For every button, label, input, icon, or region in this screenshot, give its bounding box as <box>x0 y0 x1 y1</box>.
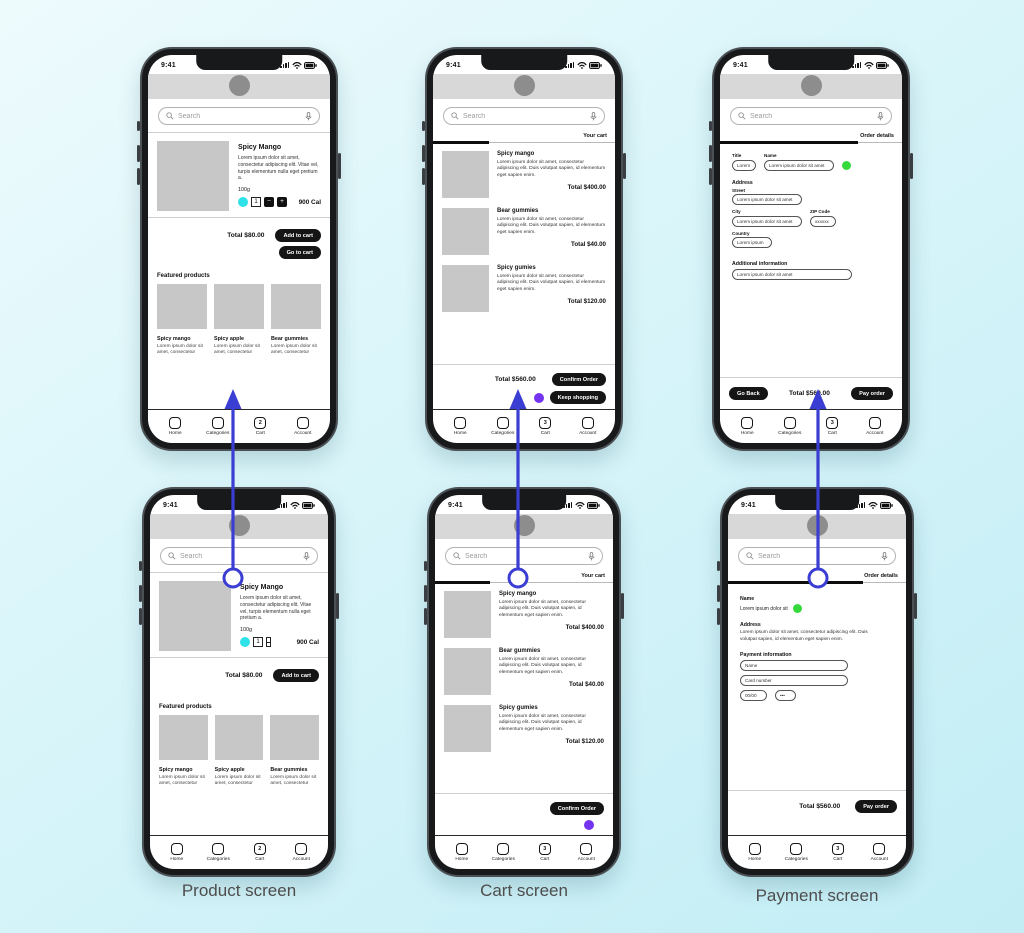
cart-badge: 3 <box>543 846 546 852</box>
wifi-icon <box>290 502 300 509</box>
address-heading: Address <box>732 180 890 186</box>
home-icon <box>749 843 761 855</box>
nav-label: Account <box>294 431 311 436</box>
search-row <box>148 99 330 132</box>
nav-home[interactable]: Home <box>445 843 479 862</box>
street-label: Street <box>732 188 890 193</box>
mic-icon <box>881 552 888 561</box>
cart-item-image <box>442 151 489 198</box>
flow-arrow-payment <box>805 385 831 600</box>
cart-item[interactable]: Bear gummies Lorem ipsum dolor sit amet,… <box>435 640 613 697</box>
cart-item-image <box>444 591 491 638</box>
cart-item[interactable]: Spicy gumies Lorem ipsum dolor sit amet,… <box>433 257 615 314</box>
home-icon <box>171 843 183 855</box>
cart-item-image <box>444 705 491 752</box>
nav-label: Home <box>169 431 182 436</box>
name-input[interactable]: Lorem ipsum dolor sit amet <box>764 160 834 171</box>
card-number-input[interactable]: Card number <box>740 675 848 686</box>
nav-label: Categories <box>492 857 515 862</box>
cart-icon: 3 <box>539 843 551 855</box>
green-marker-dot <box>842 161 851 170</box>
status-icons <box>852 62 889 69</box>
nav-account[interactable]: Account <box>858 417 892 436</box>
categories-icon <box>212 843 224 855</box>
quantity-value: 1 <box>251 197 261 207</box>
cart-item-image <box>442 208 489 255</box>
status-time: 9:41 <box>161 62 176 69</box>
nav-cart[interactable]: 3 Cart <box>528 417 562 436</box>
order-total: Total $560.00 <box>799 803 840 810</box>
header-band <box>148 74 330 99</box>
confirm-order-button[interactable]: Confirm Order <box>550 802 604 815</box>
zip-input[interactable]: xxxxxx <box>810 216 836 227</box>
nav-cart[interactable]: 2 Cart <box>243 417 277 436</box>
cart-item[interactable]: Spicy mango Lorem ipsum dolor sit amet, … <box>433 143 615 200</box>
featured-card[interactable]: Spicy apple Lorem ipsum dolor sit amet, … <box>215 715 264 787</box>
additional-info-label: Additional information <box>732 261 890 267</box>
cart-header: Your cart <box>583 133 607 139</box>
cart-total: Total $560.00 <box>495 376 536 383</box>
nav-label: Home <box>454 431 467 436</box>
home-icon <box>454 417 466 429</box>
categories-icon <box>497 843 509 855</box>
additional-info-input[interactable]: Lorem ipsum dolor sit amet <box>732 269 852 280</box>
battery-icon <box>589 62 602 69</box>
payment-info-heading: Payment information <box>740 652 894 658</box>
search-icon <box>168 552 176 560</box>
featured-card[interactable]: Bear gummies Lorem ipsum dolor sit amet,… <box>270 715 319 787</box>
title-label: Title <box>732 153 756 158</box>
account-icon <box>582 417 594 429</box>
flow-arrow-product <box>220 385 246 600</box>
nav-cart[interactable]: 2 Cart <box>243 843 277 862</box>
name-value: Lorem ipsum dolor sit <box>740 606 788 612</box>
decrease-button[interactable]: − <box>264 197 274 207</box>
nav-label: Home <box>741 431 754 436</box>
status-time: 9:41 <box>448 502 463 509</box>
wifi-icon <box>864 62 874 69</box>
cart-item-image <box>442 265 489 312</box>
go-back-button[interactable]: Go Back <box>729 387 768 400</box>
order-total: Total $80.00 <box>227 232 264 239</box>
search-row <box>720 99 902 132</box>
featured-card[interactable]: Spicy apple Lorem ipsum dolor sit amet, … <box>214 284 264 356</box>
pay-order-button[interactable]: Pay order <box>851 387 893 400</box>
search-icon <box>166 112 174 120</box>
featured-products: Spicy mango Lorem ipsum dolor sit amet, … <box>148 284 330 356</box>
home-icon <box>741 417 753 429</box>
status-time: 9:41 <box>446 62 461 69</box>
nav-label: Home <box>170 857 183 862</box>
caption-cart-screen: Cart screen <box>425 881 623 901</box>
order-details-header: Order details <box>860 133 894 139</box>
keep-shopping-button[interactable]: Keep shopping <box>550 391 606 404</box>
product-detail: Spicy Mango Lorem ipsum dolor sit amet, … <box>148 133 330 217</box>
wifi-icon <box>577 62 587 69</box>
nav-home[interactable]: Home <box>160 843 194 862</box>
order-details-header: Order details <box>864 573 898 579</box>
categories-icon <box>784 417 796 429</box>
categories-icon <box>790 843 802 855</box>
bottom-nav: Home Categories 2 Cart Account <box>150 835 328 869</box>
country-label: Country <box>732 231 890 236</box>
search-input[interactable] <box>750 113 873 120</box>
street-input[interactable]: Lorem ipsum dolor sit amet <box>732 194 802 205</box>
featured-image <box>215 715 264 760</box>
cart-item[interactable]: Bear gummies Lorem ipsum dolor sit amet,… <box>433 200 615 257</box>
search-icon <box>746 552 754 560</box>
pay-order-button[interactable]: Pay order <box>855 800 897 813</box>
address-heading: Address <box>740 622 894 628</box>
search-row <box>433 99 615 132</box>
nav-label: Account <box>578 857 595 862</box>
featured-card[interactable]: Spicy mango Lorem ipsum dolor sit amet, … <box>159 715 208 787</box>
calories-label: 900 Cal <box>299 199 321 206</box>
bottom-nav: Home Categories 3 Cart Account <box>435 835 613 869</box>
featured-card[interactable]: Bear gummies Lorem ipsum dolor sit amet,… <box>271 284 321 356</box>
nav-label: Categories <box>778 431 801 436</box>
battery-icon <box>302 502 315 509</box>
home-icon <box>456 843 468 855</box>
account-icon <box>297 417 309 429</box>
green-marker-dot <box>793 604 802 613</box>
cart-item[interactable]: Spicy gumies Lorem ipsum dolor sit amet,… <box>435 697 613 754</box>
search-bar[interactable] <box>443 107 605 125</box>
nav-label: Cart <box>255 857 264 862</box>
city-label: City <box>732 209 802 214</box>
name-label: Name <box>764 153 834 158</box>
nav-label: Cart <box>256 431 265 436</box>
status-time: 9:41 <box>733 62 748 69</box>
home-icon <box>169 417 181 429</box>
featured-image <box>271 284 321 329</box>
caption-product-screen: Product screen <box>140 881 338 901</box>
expiry-input[interactable]: 00/00 <box>740 690 767 701</box>
mic-icon <box>877 112 884 121</box>
tab-indicator <box>720 142 902 143</box>
phone-notch <box>481 55 567 70</box>
country-input[interactable]: Lorem ipsum <box>732 237 772 248</box>
account-icon <box>295 843 307 855</box>
search-bar[interactable] <box>158 107 320 125</box>
cart-badge: 3 <box>544 420 547 426</box>
cyan-marker-dot <box>238 197 248 207</box>
search-icon <box>453 552 461 560</box>
product-title: Spicy Mango <box>240 584 319 591</box>
wifi-icon <box>575 502 585 509</box>
order-total: Total $80.00 <box>225 672 262 679</box>
quantity-control: 1 900 Cal <box>240 637 319 647</box>
product-description: Lorem ipsum dolor sit amet, consectetur … <box>238 155 321 182</box>
battery-icon <box>880 502 893 509</box>
account-icon <box>869 417 881 429</box>
cart-icon: 3 <box>539 417 551 429</box>
nav-home[interactable]: Home <box>158 417 192 436</box>
purple-marker-dot <box>534 393 544 403</box>
avatar <box>801 75 822 96</box>
nav-account[interactable]: Account <box>284 843 318 862</box>
wifi-icon <box>292 62 302 69</box>
battery-icon <box>587 502 600 509</box>
cardholder-name-input[interactable]: Name <box>740 660 848 671</box>
cart-icon: 2 <box>254 843 266 855</box>
nav-label: Cart <box>541 431 550 436</box>
cart-icon: 2 <box>254 417 266 429</box>
search-icon <box>738 112 746 120</box>
nav-label: Cart <box>833 857 842 862</box>
avatar <box>229 75 250 96</box>
featured-image <box>270 715 319 760</box>
featured-card[interactable]: Spicy mango Lorem ipsum dolor sit amet, … <box>157 284 207 356</box>
tab-indicator <box>433 142 615 143</box>
status-icons <box>278 502 315 509</box>
cart-item-image <box>444 648 491 695</box>
battery-icon <box>876 62 889 69</box>
featured-heading: Featured products <box>150 682 328 715</box>
nav-account[interactable]: Account <box>569 843 603 862</box>
increase-button[interactable]: + <box>277 197 287 207</box>
status-time: 9:41 <box>163 502 178 509</box>
nav-label: Account <box>579 431 596 436</box>
bottom-nav: Home Categories 3 Cart Account <box>728 835 906 869</box>
status-icons <box>563 502 600 509</box>
purple-marker-dot <box>584 820 594 830</box>
featured-image <box>214 284 264 329</box>
account-icon <box>580 843 592 855</box>
cvv-input[interactable]: ••• <box>775 690 796 701</box>
nav-categories[interactable]: Categories <box>779 843 813 862</box>
nav-home[interactable]: Home <box>730 417 764 436</box>
status-time: 9:41 <box>741 502 756 509</box>
cart-header: Your cart <box>581 573 605 579</box>
product-weight: 100g <box>240 627 319 633</box>
product-title: Spicy Mango <box>238 144 321 151</box>
calories-label: 900 Cal <box>297 639 319 646</box>
header-band <box>433 74 615 99</box>
address-value: Lorem ipsum dolor sit amet, consectetur … <box>740 630 872 643</box>
featured-image <box>157 284 207 329</box>
mic-icon <box>303 552 310 561</box>
cart-badge: 2 <box>259 420 262 426</box>
search-input[interactable] <box>463 113 586 120</box>
search-icon <box>451 112 459 120</box>
avatar <box>514 75 535 96</box>
cyan-marker-dot <box>240 637 250 647</box>
search-input[interactable] <box>178 113 301 120</box>
nav-account[interactable]: Account <box>862 843 896 862</box>
nav-label: Cart <box>540 857 549 862</box>
nav-label: Account <box>866 431 883 436</box>
wifi-icon <box>868 502 878 509</box>
go-to-cart-button[interactable]: Go to cart <box>279 246 321 259</box>
status-icons <box>280 62 317 69</box>
caption-payment-screen: Payment screen <box>712 886 922 906</box>
nav-account[interactable]: Account <box>571 417 605 436</box>
account-icon <box>873 843 885 855</box>
status-icons <box>856 502 893 509</box>
nav-label: Account <box>293 857 310 862</box>
product-description: Lorem ipsum dolor sit amet, consectetur … <box>240 595 319 622</box>
nav-label: Account <box>871 857 888 862</box>
mic-icon <box>590 112 597 121</box>
phone-notch <box>196 55 282 70</box>
add-to-cart-button[interactable]: Add to cart <box>275 229 321 242</box>
flow-arrow-cart <box>505 385 531 600</box>
nav-home[interactable]: Home <box>443 417 477 436</box>
nav-label: Categories <box>785 857 808 862</box>
nav-label: Home <box>455 857 468 862</box>
quantity-value: 1 <box>253 637 263 647</box>
battery-icon <box>304 62 317 69</box>
nav-categories[interactable]: Categories <box>773 417 807 436</box>
featured-image <box>159 715 208 760</box>
product-weight: 100g <box>238 187 321 193</box>
nav-cart[interactable]: 3 Cart <box>528 843 562 862</box>
featured-heading: Featured products <box>148 259 330 284</box>
phone-notch <box>768 55 854 70</box>
nav-account[interactable]: Account <box>286 417 320 436</box>
add-to-cart-button[interactable]: Add to cart <box>273 669 319 682</box>
nav-cart[interactable]: 3 Cart <box>821 843 855 862</box>
nav-home[interactable]: Home <box>738 843 772 862</box>
title-input[interactable]: Lorem <box>732 160 756 171</box>
nav-categories[interactable]: Categories <box>486 843 520 862</box>
confirm-order-button[interactable]: Confirm Order <box>552 373 606 386</box>
mic-icon <box>588 552 595 561</box>
quantity-spinner[interactable] <box>266 637 271 647</box>
product-image <box>157 141 229 211</box>
cart-icon: 3 <box>832 843 844 855</box>
nav-categories[interactable]: Categories <box>201 843 235 862</box>
nav-label: Categories <box>207 857 230 862</box>
nav-label: Home <box>748 857 761 862</box>
zip-label: ZIP Code <box>810 209 836 214</box>
search-bar[interactable] <box>730 107 892 125</box>
status-icons <box>565 62 602 69</box>
cart-badge: 3 <box>836 846 839 852</box>
mic-icon <box>305 112 312 121</box>
header-band <box>720 74 902 99</box>
cart-badge: 3 <box>831 420 834 426</box>
city-input[interactable]: Lorem ipsum dolor sit amet <box>732 216 802 227</box>
featured-products: Spicy mango Lorem ipsum dolor sit amet, … <box>150 715 328 787</box>
quantity-control: 1 − + 900 Cal <box>238 197 321 207</box>
cart-badge: 2 <box>258 846 261 852</box>
